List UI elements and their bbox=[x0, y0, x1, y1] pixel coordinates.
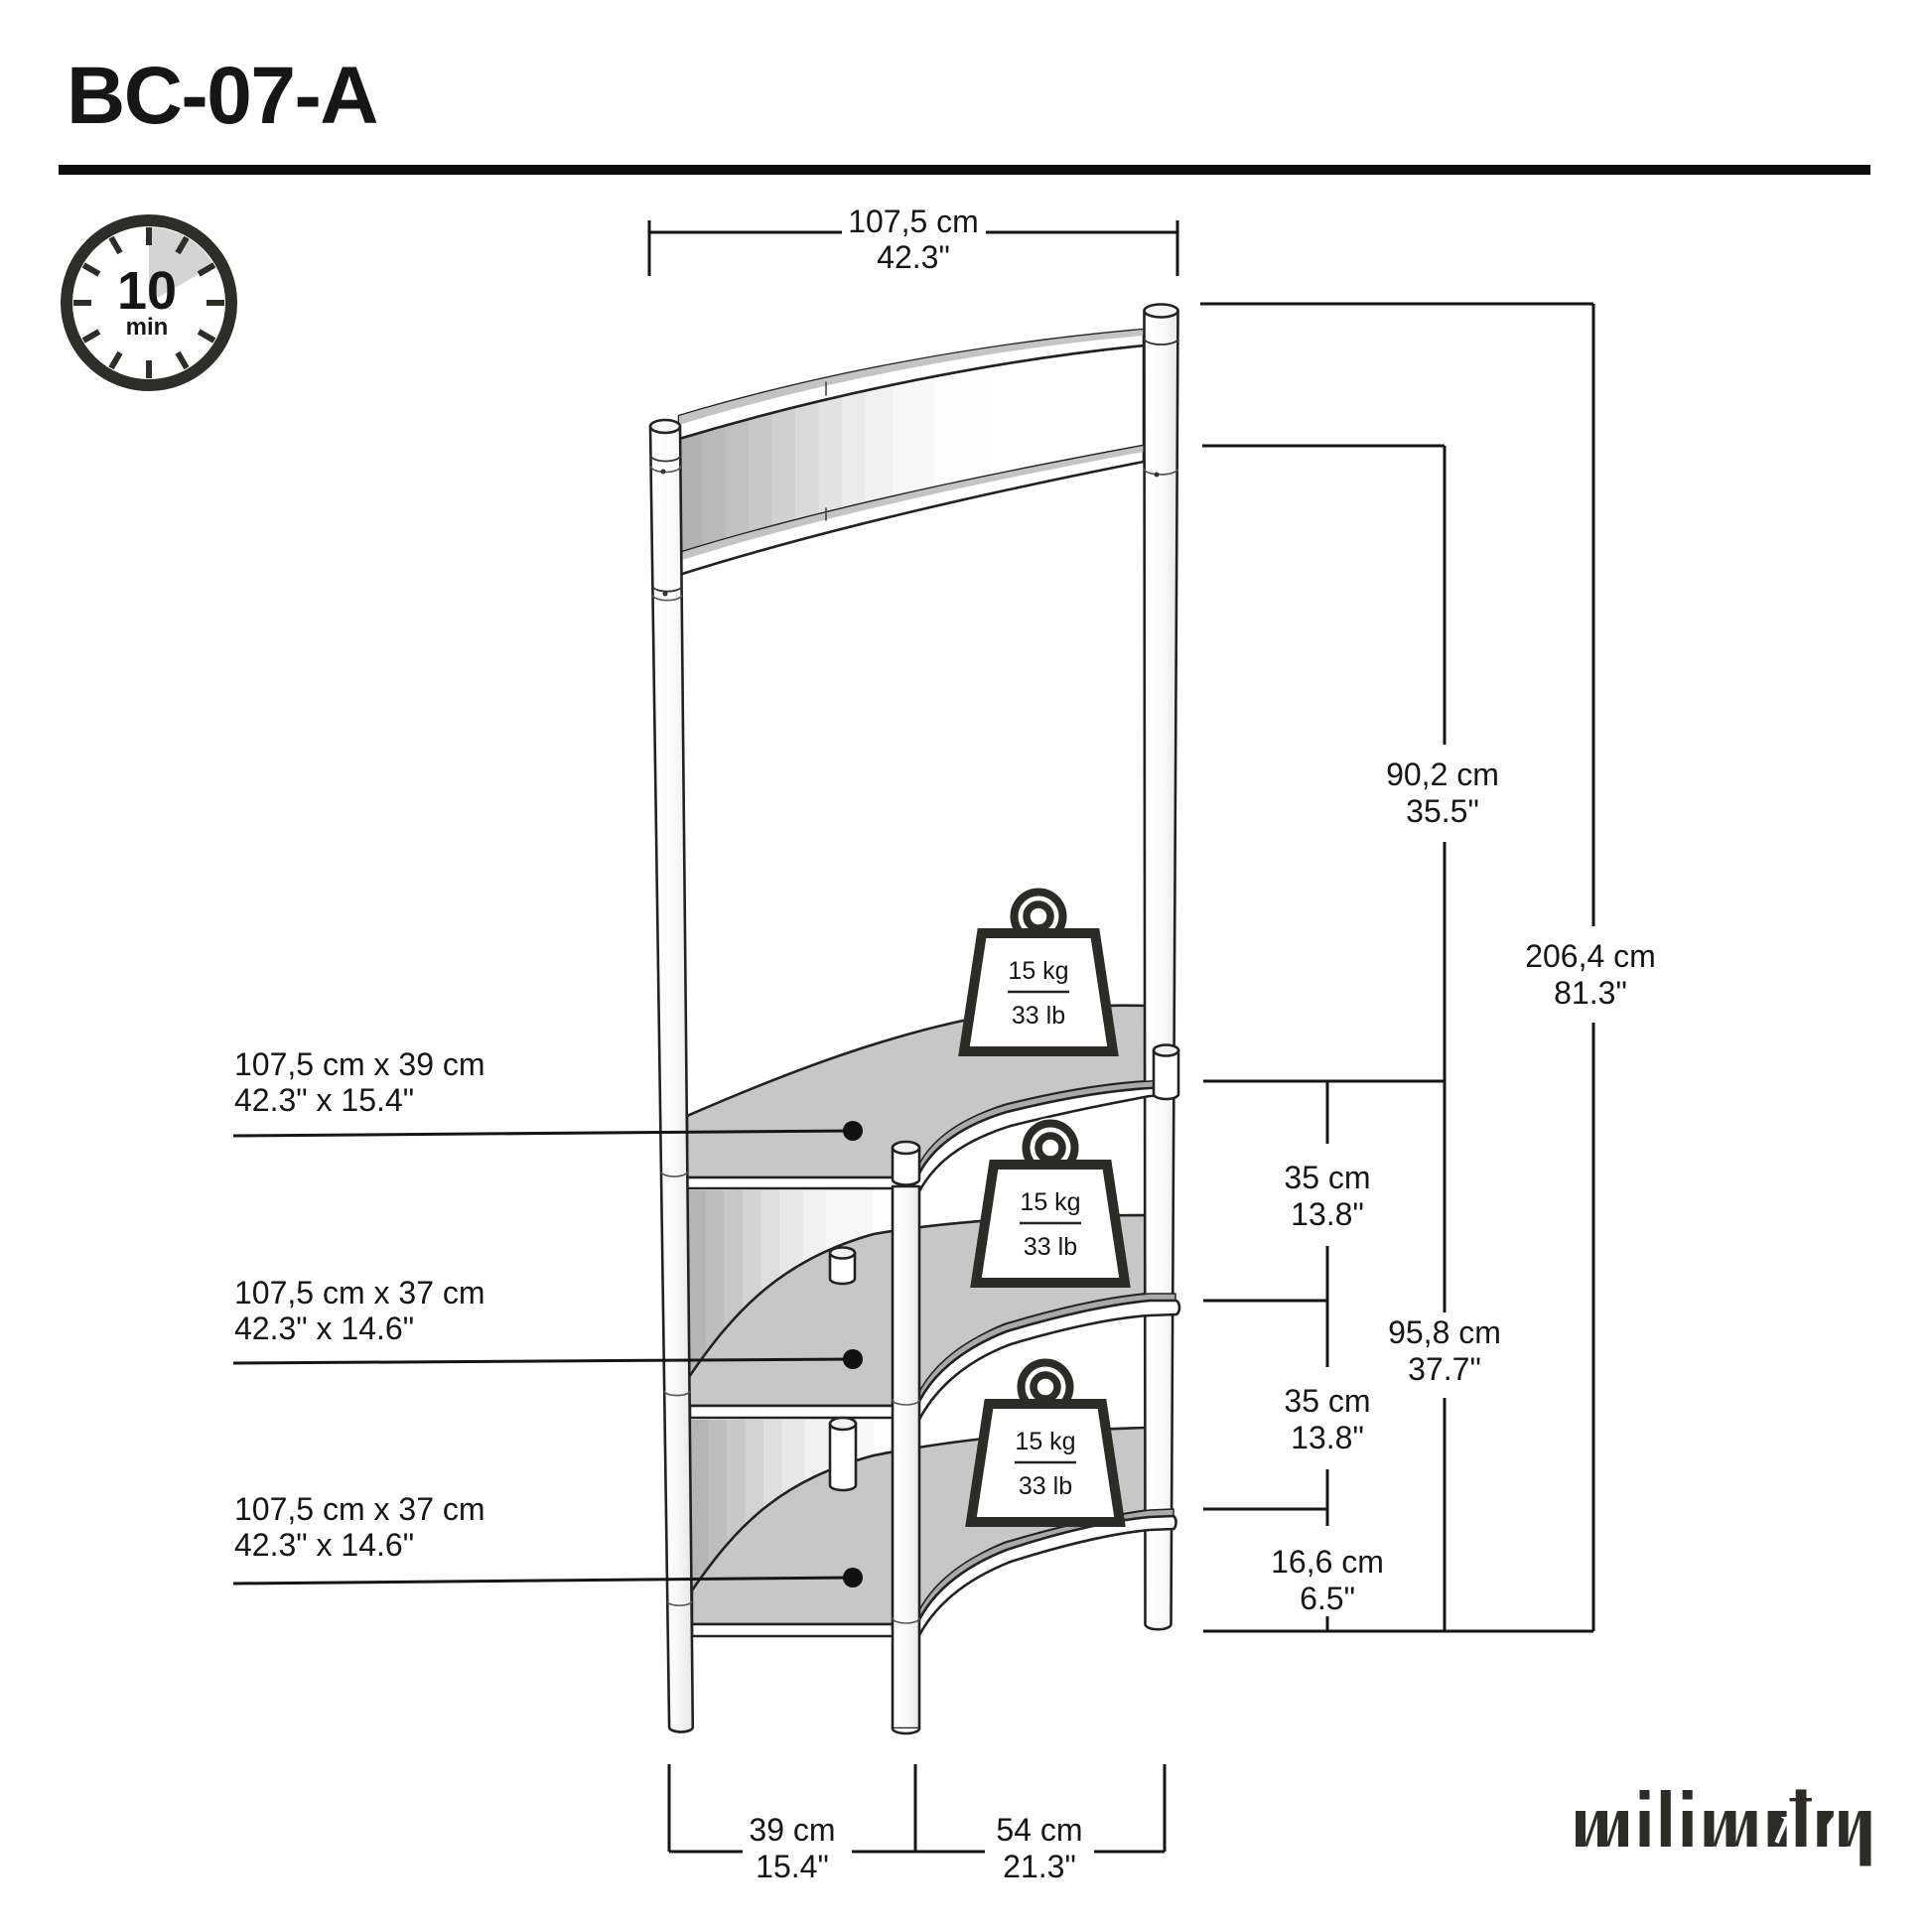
svg-text:39 cm: 39 cm bbox=[749, 1812, 835, 1848]
svg-text:42.3": 42.3" bbox=[877, 239, 950, 275]
svg-text:33 lb: 33 lb bbox=[1024, 1233, 1077, 1261]
svg-text:107,5 cm x 39 cm: 107,5 cm x 39 cm bbox=[234, 1046, 485, 1082]
svg-text:54 cm: 54 cm bbox=[996, 1812, 1082, 1848]
svg-text:107,5 cm x 37 cm: 107,5 cm x 37 cm bbox=[234, 1275, 485, 1311]
svg-text:37.7": 37.7" bbox=[1408, 1351, 1481, 1387]
svg-text:33 lb: 33 lb bbox=[1019, 1472, 1072, 1500]
svg-text:42.3" x 15.4": 42.3" x 15.4" bbox=[234, 1082, 414, 1118]
svg-text:35 cm: 35 cm bbox=[1284, 1383, 1370, 1419]
svg-text:81.3": 81.3" bbox=[1554, 975, 1627, 1011]
svg-text:16,6 cm: 16,6 cm bbox=[1271, 1544, 1384, 1580]
svg-text:min: min bbox=[126, 314, 169, 341]
svg-text:13.8": 13.8" bbox=[1291, 1420, 1364, 1455]
svg-text:107,5 cm: 107,5 cm bbox=[848, 204, 979, 239]
svg-text:13.8": 13.8" bbox=[1291, 1196, 1364, 1232]
svg-text:107,5 cm x 37 cm: 107,5 cm x 37 cm bbox=[234, 1491, 485, 1527]
svg-text:6.5": 6.5" bbox=[1300, 1581, 1355, 1616]
svg-text:35.5": 35.5" bbox=[1406, 793, 1479, 829]
svg-text:42.3" x 14.6": 42.3" x 14.6" bbox=[234, 1527, 414, 1563]
svg-text:15.4": 15.4" bbox=[756, 1849, 829, 1884]
svg-text:33 lb: 33 lb bbox=[1012, 1002, 1065, 1030]
svg-text:15 kg: 15 kg bbox=[1020, 1188, 1080, 1216]
svg-text:10: 10 bbox=[117, 261, 177, 321]
svg-text:21.3": 21.3" bbox=[1003, 1849, 1076, 1884]
svg-text:15 kg: 15 kg bbox=[1008, 957, 1068, 985]
svg-text:15 kg: 15 kg bbox=[1015, 1428, 1075, 1455]
svg-text:BC-07-A: BC-07-A bbox=[67, 51, 377, 141]
svg-text:35 cm: 35 cm bbox=[1284, 1160, 1370, 1195]
svg-text:206,4 cm: 206,4 cm bbox=[1525, 938, 1656, 974]
svg-text:42.3" x 14.6": 42.3" x 14.6" bbox=[234, 1311, 414, 1346]
svg-text:95,8 cm: 95,8 cm bbox=[1388, 1314, 1501, 1350]
svg-text:90,2 cm: 90,2 cm bbox=[1386, 757, 1499, 792]
